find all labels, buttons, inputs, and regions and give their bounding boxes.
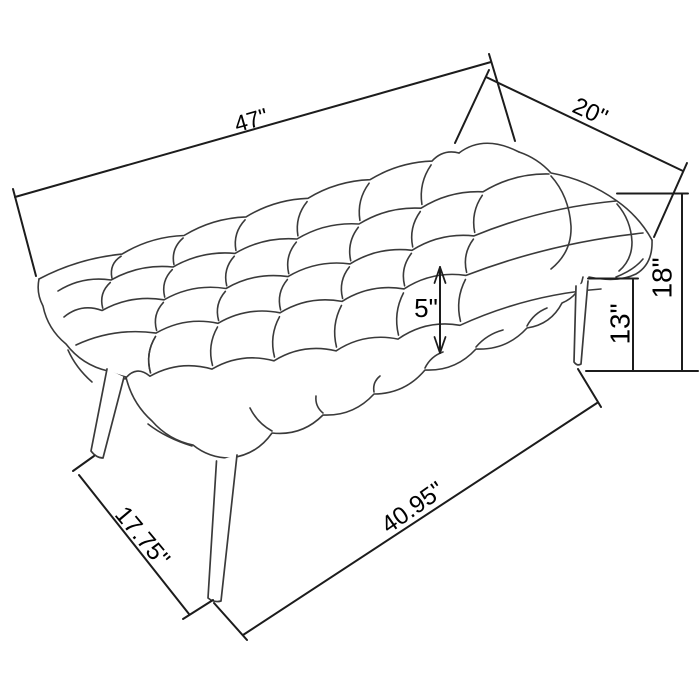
svg-text:18": 18" bbox=[647, 257, 678, 298]
svg-text:20": 20" bbox=[568, 92, 611, 131]
svg-text:5": 5" bbox=[414, 293, 438, 323]
svg-text:47": 47" bbox=[231, 103, 271, 137]
svg-text:13": 13" bbox=[605, 303, 636, 344]
svg-text:17.75": 17.75" bbox=[109, 502, 175, 573]
